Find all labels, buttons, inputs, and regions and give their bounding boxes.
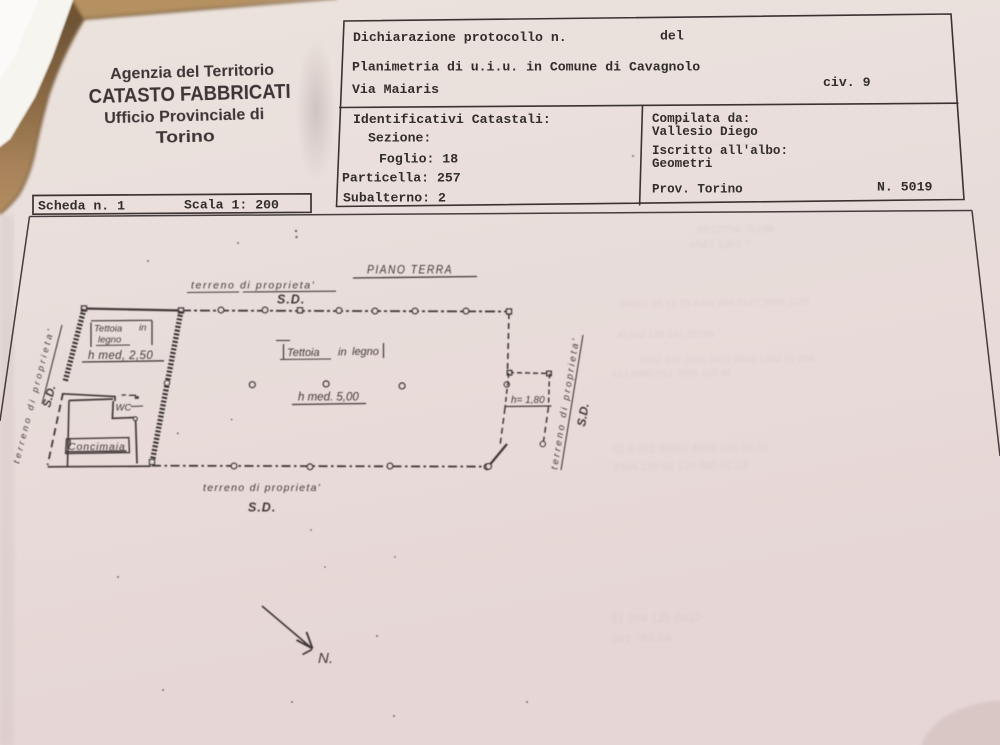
svg-text:041 765 04: 041 765 04 [611,631,672,646]
svg-text:Iscritto all'albo:: Iscritto all'albo: [652,144,788,158]
svg-text:Geometri: Geometri [652,157,713,171]
svg-text:412 0465 012 3045 102 45: 412 0465 012 3045 102 45 [612,368,732,381]
svg-text:h med, 2,50: h med, 2,50 [88,350,153,362]
svg-text:terreno di proprieta': terreno di proprieta' [203,482,321,494]
svg-text:Identificativi Catastali:: Identificativi Catastali: [353,112,551,127]
svg-text:Torino: Torino [156,127,215,147]
svg-text:in: in [338,347,347,359]
svg-text:Compilata da:: Compilata da: [652,112,750,126]
svg-text:Concimaia: Concimaia [68,441,126,453]
svg-text:N.: N. [318,650,333,667]
svg-text:51 204 125 0412: 51 204 125 0412 [611,610,702,625]
svg-text:in: in [139,323,146,334]
svg-text:Dichiarazione protocollo n.: Dichiarazione protocollo n. [353,30,567,45]
svg-text:Particella: 257: Particella: 257 [342,171,461,186]
svg-text:h med. 5,00: h med. 5,00 [298,392,359,404]
svg-text:WC: WC [116,403,132,414]
svg-text:Sezione:: Sezione: [368,131,431,146]
svg-text:Foglio: 18: Foglio: 18 [379,152,458,167]
svg-text:del: del [660,29,684,44]
svg-text:Via Maiaris: Via Maiaris [352,82,439,97]
svg-text:Prov. Torino: Prov. Torino [652,183,743,197]
svg-text:h= 1,80: h= 1,80 [511,395,545,406]
svg-text:0512704 70198: 0512704 70198 [698,223,775,236]
svg-text:Scala 1: 200: Scala 1: 200 [184,198,279,213]
svg-text:Tettoia: Tettoia [287,347,320,359]
svg-text:terreno di proprieta': terreno di proprieta' [191,280,315,292]
svg-text:S.D.: S.D. [277,293,305,307]
svg-text:Scheda n. 1: Scheda n. 1 [38,199,125,214]
svg-text:41204 125 041 20145: 41204 125 041 20145 [617,329,715,341]
svg-text:civ. 9: civ. 9 [823,75,871,90]
svg-text:Tettoia: Tettoia [94,324,122,335]
svg-text:41 5 012 30412 6501 241 50 41: 41 5 012 30412 6501 241 50 41 [613,441,769,455]
svg-text:S.D.: S.D. [248,501,276,515]
svg-text:PIANO TERRA: PIANO TERRA [367,265,453,277]
svg-text:legno: legno [352,346,379,358]
svg-text:Subalterno: 2: Subalterno: 2 [343,191,446,206]
svg-text:2304 125 04 120 465 01 24: 2304 125 04 120 465 01 24 [613,460,748,474]
svg-text:Planimetria di u.i.u. in Comun: Planimetria di u.i.u. in Comune di Cavag… [352,60,700,75]
svg-text:6547 1301 7: 6547 1301 7 [690,239,751,252]
svg-text:N. 5019: N. 5019 [877,180,932,195]
svg-text:legno: legno [98,335,121,346]
svg-text:___________: ___________ [695,133,764,146]
